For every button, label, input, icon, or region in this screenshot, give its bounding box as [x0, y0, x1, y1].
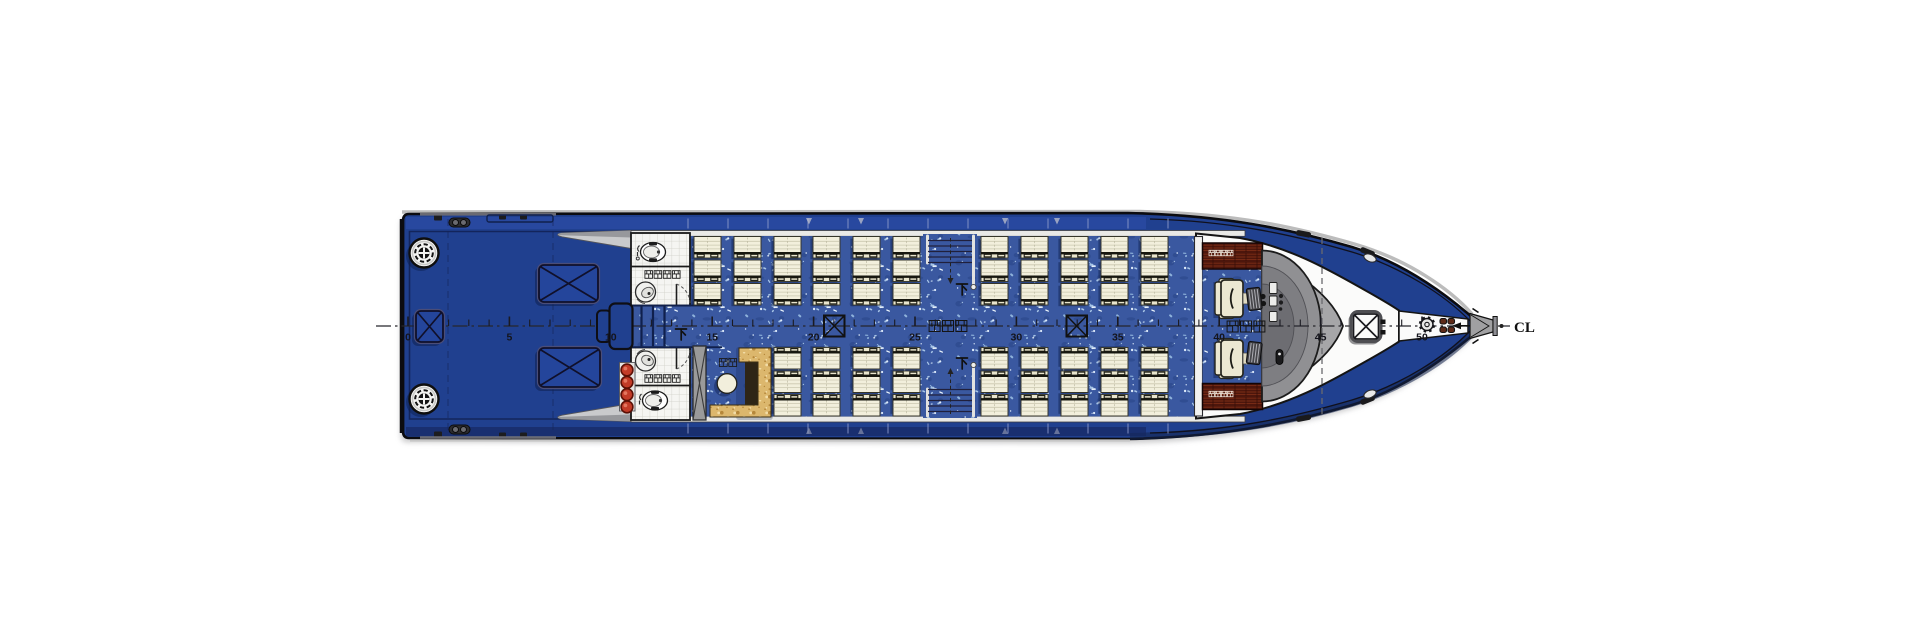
svg-text:35: 35: [1112, 332, 1124, 344]
svg-text:20: 20: [808, 332, 820, 344]
svg-text:0: 0: [405, 332, 411, 344]
svg-text:25: 25: [909, 332, 921, 344]
svg-text:30: 30: [1011, 332, 1023, 344]
svg-text:50: 50: [1416, 332, 1428, 344]
svg-text:45: 45: [1315, 332, 1327, 344]
svg-text:5: 5: [506, 332, 512, 344]
svg-text:CL: CL: [1514, 320, 1535, 336]
svg-text:15: 15: [706, 332, 718, 344]
svg-text:40: 40: [1213, 332, 1225, 344]
svg-text:10: 10: [605, 332, 617, 344]
